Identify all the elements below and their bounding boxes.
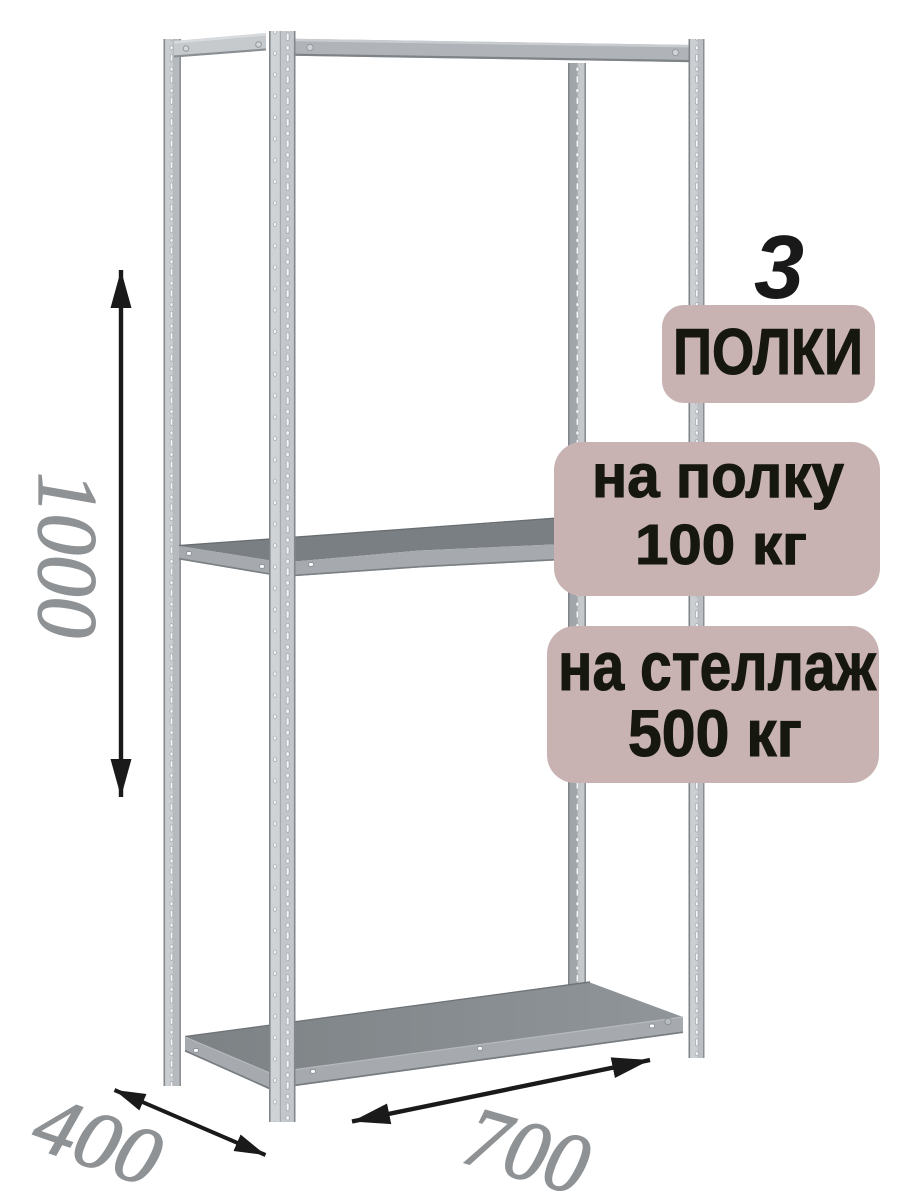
svg-text:1000: 1000	[20, 472, 114, 638]
svg-text:700: 700	[454, 1087, 600, 1200]
svg-text:3: 3	[754, 218, 804, 318]
svg-text:400: 400	[22, 1077, 173, 1200]
svg-text:на полку: на полку	[592, 442, 844, 510]
svg-text:ПОЛКИ: ПОЛКИ	[673, 315, 863, 388]
svg-text:500 кг: 500 кг	[628, 696, 802, 770]
svg-text:100 кг: 100 кг	[635, 513, 807, 577]
svg-text:на стеллаж: на стеллаж	[558, 628, 877, 705]
